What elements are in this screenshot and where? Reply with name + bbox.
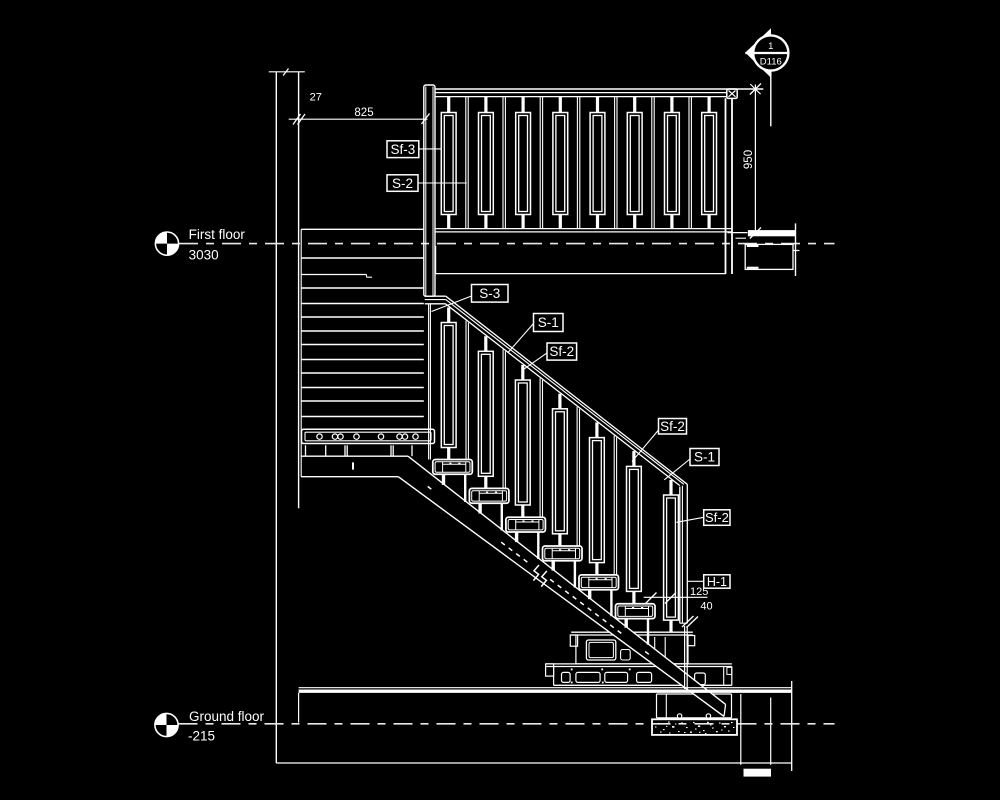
svg-text:40: 40	[700, 601, 712, 613]
svg-text:825: 825	[354, 107, 373, 119]
svg-text:S-1: S-1	[538, 315, 559, 330]
svg-text:27: 27	[310, 92, 322, 104]
svg-text:H-1: H-1	[707, 575, 727, 589]
svg-text:S-1: S-1	[694, 450, 715, 465]
svg-text:Ground floor: Ground floor	[189, 709, 265, 724]
svg-text:-215: -215	[188, 729, 215, 744]
svg-text:950: 950	[743, 150, 755, 169]
svg-text:3030: 3030	[189, 247, 219, 262]
svg-text:S-3: S-3	[479, 286, 500, 301]
svg-text:S-2: S-2	[392, 176, 413, 191]
svg-text:Sf-2: Sf-2	[705, 510, 729, 525]
svg-text:1: 1	[768, 41, 773, 52]
svg-text:125: 125	[690, 586, 708, 598]
svg-text:Sf-2: Sf-2	[660, 419, 685, 434]
svg-text:Sf-3: Sf-3	[391, 142, 416, 157]
svg-text:D116: D116	[760, 57, 782, 68]
svg-text:Sf-2: Sf-2	[549, 344, 574, 359]
svg-text:First floor: First floor	[189, 227, 246, 242]
